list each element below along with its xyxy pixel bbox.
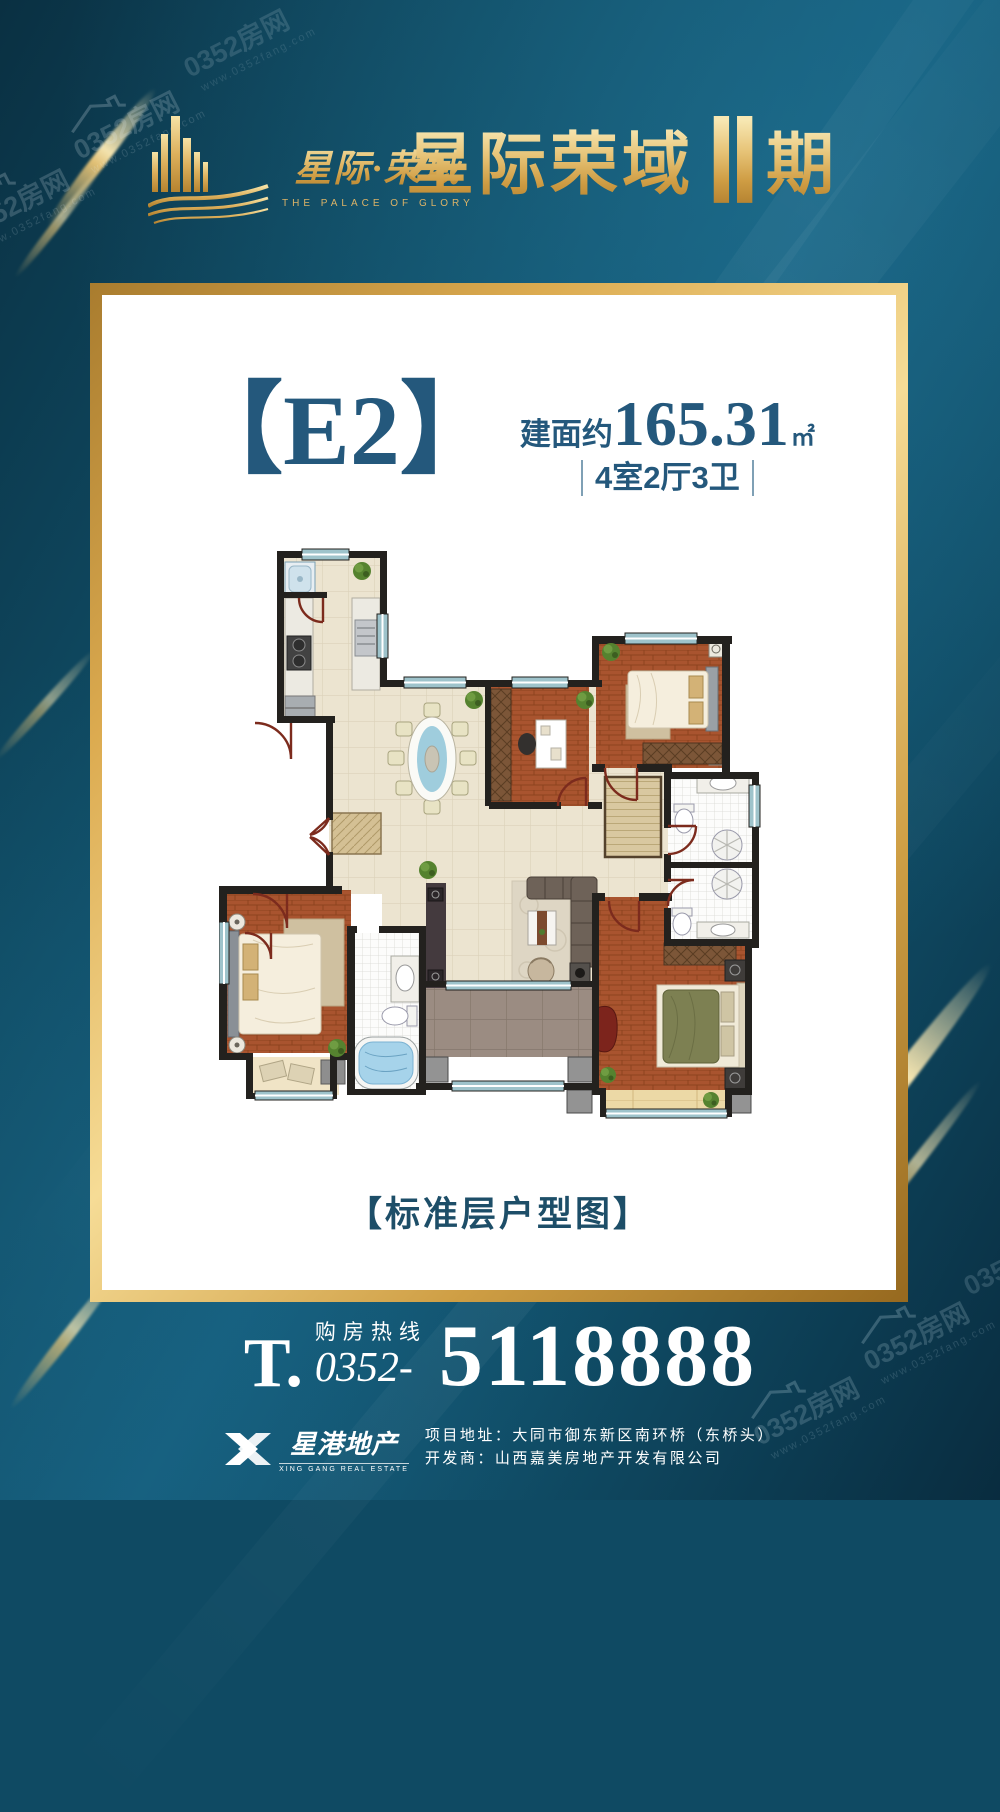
footer: 星港地产 XING GANG REAL ESTATE 项目地址：大同市御东新区南… xyxy=(0,1424,1000,1473)
phase-unit: 期 xyxy=(766,123,834,208)
hotline-t: T. xyxy=(244,1336,303,1392)
floor-plan-diagram xyxy=(219,540,779,1160)
building-waves-icon xyxy=(148,110,270,228)
gold-fold-highlight xyxy=(0,646,99,764)
area-value: 165.31 xyxy=(613,395,789,453)
company-name-en: XING GANG REAL ESTATE xyxy=(279,1463,409,1473)
area-prefix: 建面约 xyxy=(520,409,613,454)
hotline: T. 购房热线 0352- 5118888 xyxy=(0,1316,1000,1392)
plan-caption: 【标准层户型图】 xyxy=(102,1186,896,1237)
gold-fold-highlight xyxy=(42,84,162,231)
area-line: 建面约 165.31 ㎡ xyxy=(520,395,815,454)
phase-numeral: Ⅱ xyxy=(704,116,762,208)
company-name: 星港地产 xyxy=(290,1424,398,1461)
hotline-prefix: 0352- xyxy=(315,1346,413,1390)
developer-line: 开发商：山西嘉美房地产开发有限公司 xyxy=(425,1447,775,1470)
card-inner: 【E2】 建面约 165.31 ㎡ 4室2厅3卫 xyxy=(102,295,896,1290)
hotline-number: 5118888 xyxy=(439,1323,756,1392)
project-address: 项目地址：大同市御东新区南环桥（东桥头） xyxy=(425,1424,775,1447)
developer-logo-icon xyxy=(225,1429,271,1469)
layout-summary: 4室2厅3卫 xyxy=(581,460,754,496)
hotline-label: 购房热线 xyxy=(315,1316,427,1346)
project-title: 星际荣域 Ⅱ 期 xyxy=(406,116,834,208)
unit-code: 【E2】 xyxy=(183,381,500,481)
unit-header: 【E2】 建面约 165.31 ㎡ 4室2厅3卫 xyxy=(102,381,896,496)
floorplan-card: 【E2】 建面约 165.31 ㎡ 4室2厅3卫 xyxy=(90,283,908,1302)
area-unit: ㎡ xyxy=(791,417,815,452)
gold-fold-highlight xyxy=(11,165,104,281)
project-title-name: 星际荣域 xyxy=(406,123,694,208)
